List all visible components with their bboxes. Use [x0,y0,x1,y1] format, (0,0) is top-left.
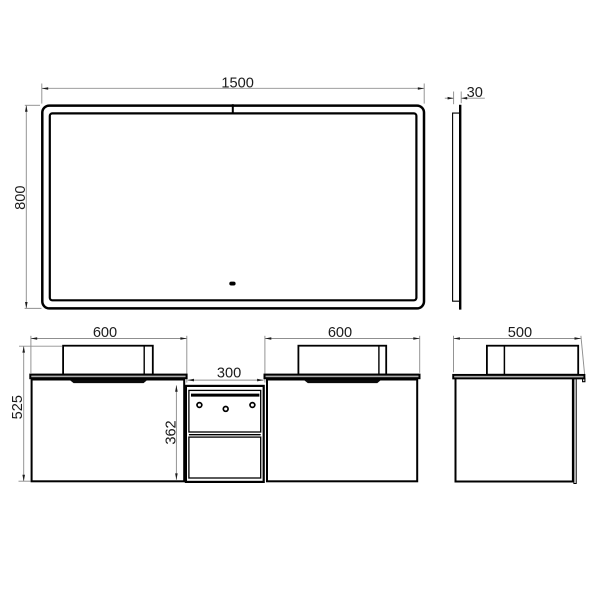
svg-text:525: 525 [10,395,26,419]
svg-text:1500: 1500 [221,75,253,91]
svg-text:362: 362 [163,420,179,444]
svg-text:30: 30 [467,85,483,101]
svg-text:600: 600 [93,325,117,341]
svg-text:500: 500 [508,325,532,341]
svg-text:800: 800 [13,186,29,210]
svg-text:300: 300 [217,365,241,381]
svg-text:600: 600 [328,325,352,341]
